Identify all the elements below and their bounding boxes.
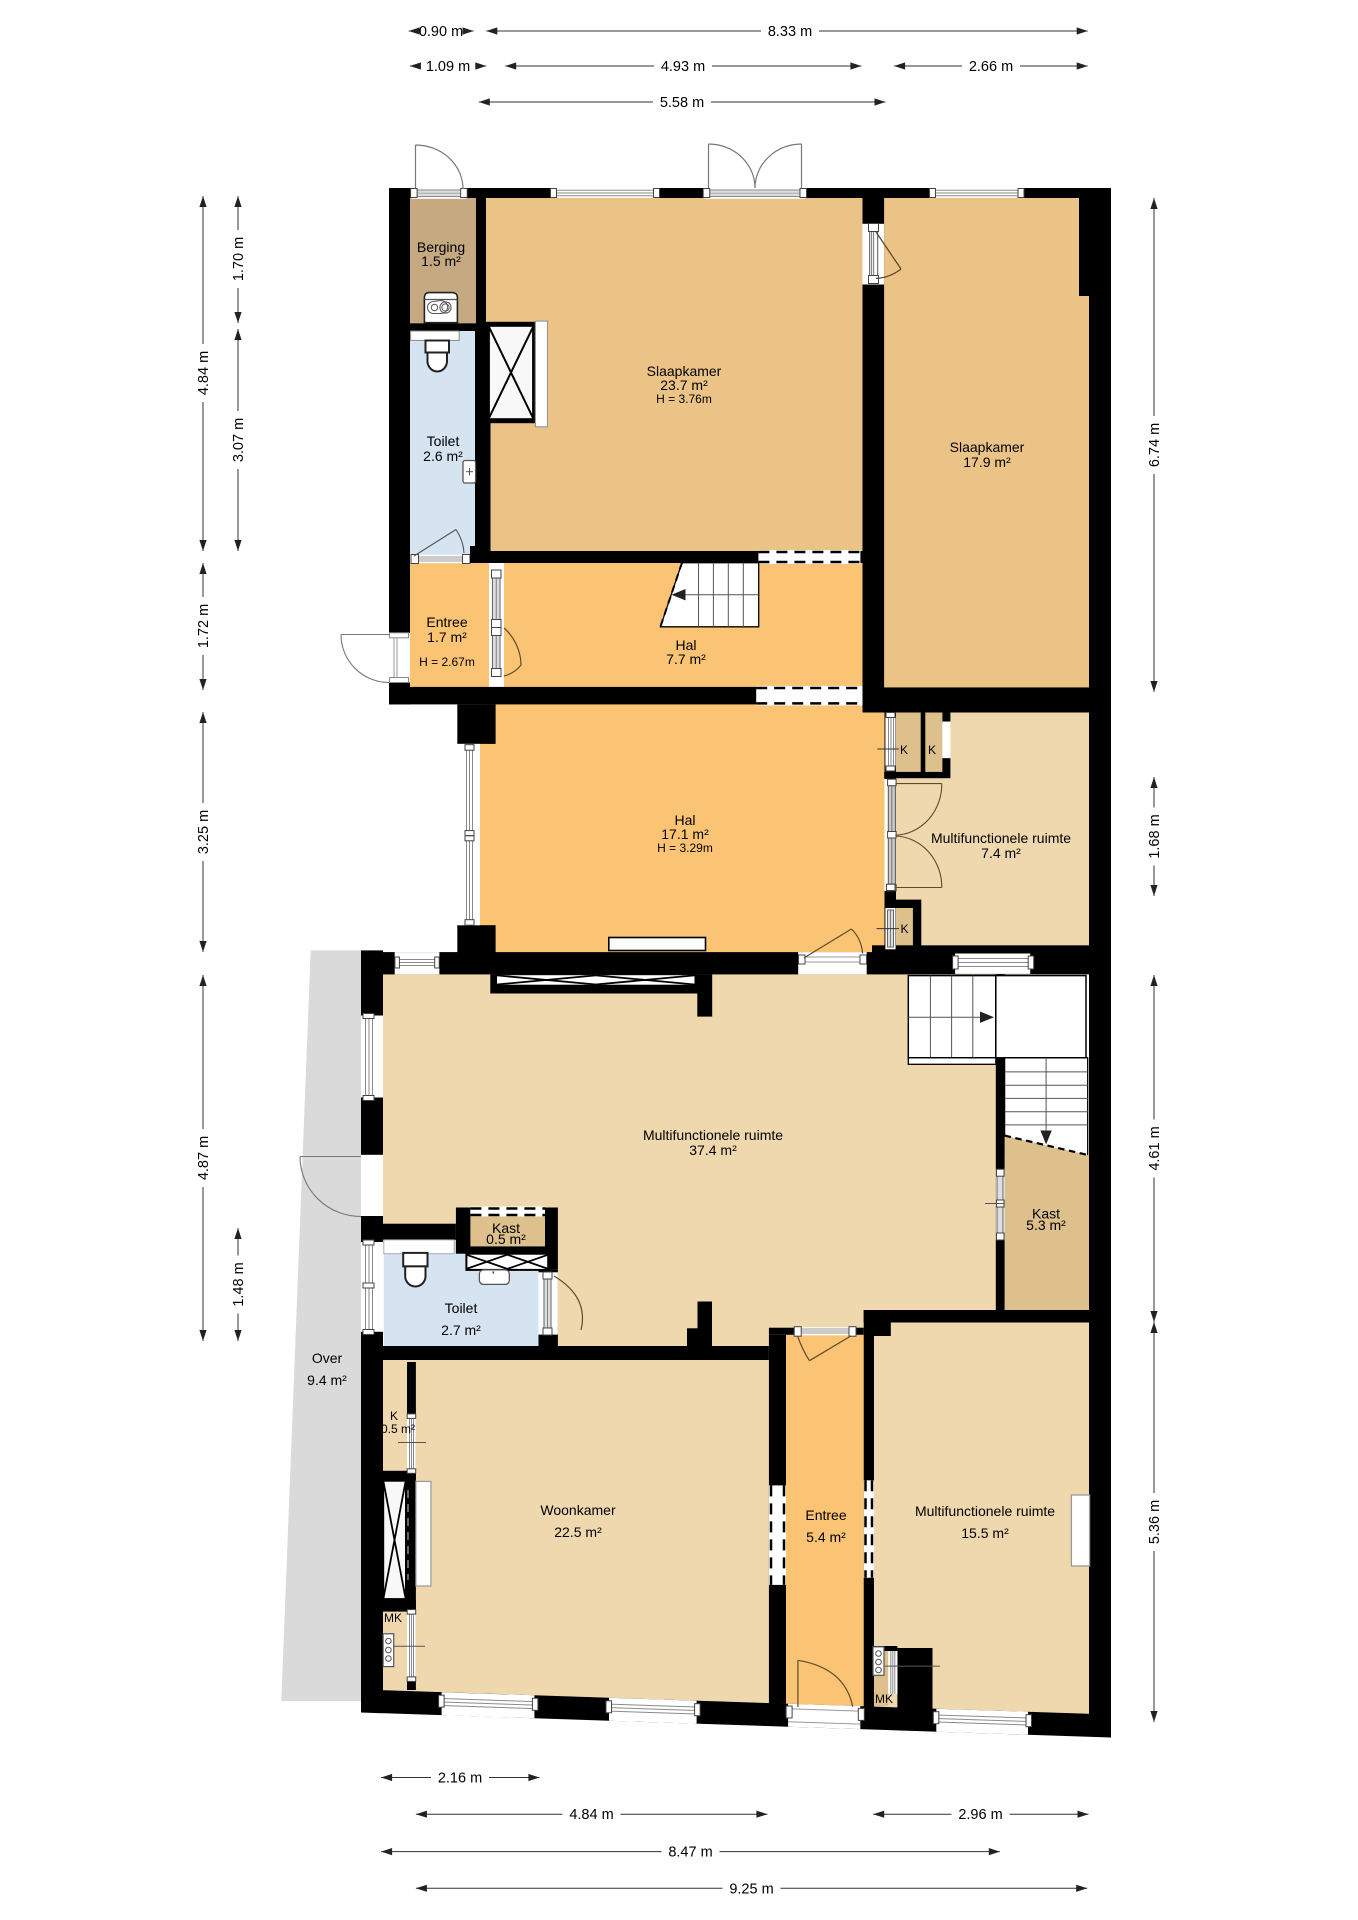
svg-text:1.72 m: 1.72 m — [196, 604, 212, 648]
svg-text:9.25 m: 9.25 m — [729, 1881, 773, 1897]
svg-text:Toilet: Toilet — [445, 1300, 478, 1316]
svg-text:2.16 m: 2.16 m — [438, 1771, 482, 1787]
svg-text:0.90 m: 0.90 m — [419, 24, 463, 40]
svg-text:Woonkamer: Woonkamer — [540, 1502, 616, 1518]
svg-text:4.93 m: 4.93 m — [661, 59, 705, 75]
svg-text:Multifunctionele ruimte: Multifunctionele ruimte — [931, 830, 1071, 846]
svg-text:H = 3.76m: H = 3.76m — [656, 392, 712, 406]
svg-text:4.61 m: 4.61 m — [1147, 1126, 1163, 1170]
svg-text:Entree: Entree — [805, 1507, 846, 1523]
svg-text:1.09 m: 1.09 m — [426, 59, 470, 75]
svg-text:Slaapkamer: Slaapkamer — [950, 439, 1025, 455]
svg-text:2.66 m: 2.66 m — [969, 59, 1013, 75]
svg-text:MK: MK — [875, 1692, 893, 1706]
svg-text:H = 3.29m: H = 3.29m — [657, 841, 713, 855]
svg-text:1.48 m: 1.48 m — [231, 1262, 247, 1306]
svg-text:5.36 m: 5.36 m — [1147, 1500, 1163, 1544]
svg-text:3.25 m: 3.25 m — [196, 810, 212, 854]
svg-text:2.7 m²: 2.7 m² — [441, 1322, 481, 1338]
svg-text:5.4 m²: 5.4 m² — [806, 1529, 846, 1545]
svg-text:3.07 m: 3.07 m — [231, 418, 247, 462]
svg-text:2.96 m: 2.96 m — [958, 1807, 1002, 1823]
svg-text:1.70 m: 1.70 m — [231, 237, 247, 281]
svg-text:8.33 m: 8.33 m — [768, 24, 812, 40]
svg-text:H = 2.67m: H = 2.67m — [419, 655, 475, 669]
svg-text:17.9 m²: 17.9 m² — [963, 454, 1011, 470]
svg-text:1.68 m: 1.68 m — [1147, 814, 1163, 858]
svg-text:17.1 m²: 17.1 m² — [661, 826, 709, 842]
svg-text:Multifunctionele ruimte: Multifunctionele ruimte — [643, 1127, 783, 1143]
svg-text:2.6 m²: 2.6 m² — [423, 448, 463, 464]
svg-text:0.5 m²: 0.5 m² — [486, 1231, 526, 1247]
svg-text:7.7 m²: 7.7 m² — [666, 651, 706, 667]
svg-text:4.84 m: 4.84 m — [569, 1807, 613, 1823]
svg-text:22.5 m²: 22.5 m² — [554, 1524, 602, 1540]
svg-text:0.5 m²: 0.5 m² — [381, 1422, 415, 1436]
svg-text:K: K — [900, 743, 908, 757]
svg-text:Toilet: Toilet — [427, 433, 460, 449]
svg-text:9.4 m²: 9.4 m² — [307, 1372, 347, 1388]
svg-text:1.7 m²: 1.7 m² — [427, 629, 467, 645]
svg-text:6.74 m: 6.74 m — [1147, 423, 1163, 467]
svg-text:K: K — [928, 743, 936, 757]
svg-text:8.47 m: 8.47 m — [668, 1845, 712, 1861]
svg-text:37.4 m²: 37.4 m² — [689, 1142, 737, 1158]
svg-text:K: K — [900, 922, 908, 936]
svg-text:23.7 m²: 23.7 m² — [660, 377, 708, 393]
svg-text:1.5 m²: 1.5 m² — [421, 253, 461, 269]
svg-text:Multifunctionele ruimte: Multifunctionele ruimte — [915, 1503, 1055, 1519]
svg-text:15.5 m²: 15.5 m² — [961, 1525, 1009, 1541]
svg-text:7.4 m²: 7.4 m² — [981, 845, 1021, 861]
svg-text:MK: MK — [384, 1611, 402, 1625]
svg-text:Over: Over — [312, 1350, 343, 1366]
svg-text:4.84 m: 4.84 m — [196, 351, 212, 395]
svg-text:5.3 m²: 5.3 m² — [1026, 1217, 1066, 1233]
svg-text:K: K — [390, 1409, 398, 1423]
svg-text:Entree: Entree — [426, 614, 467, 630]
svg-text:5.58 m: 5.58 m — [660, 95, 704, 111]
svg-text:4.87 m: 4.87 m — [196, 1136, 212, 1180]
